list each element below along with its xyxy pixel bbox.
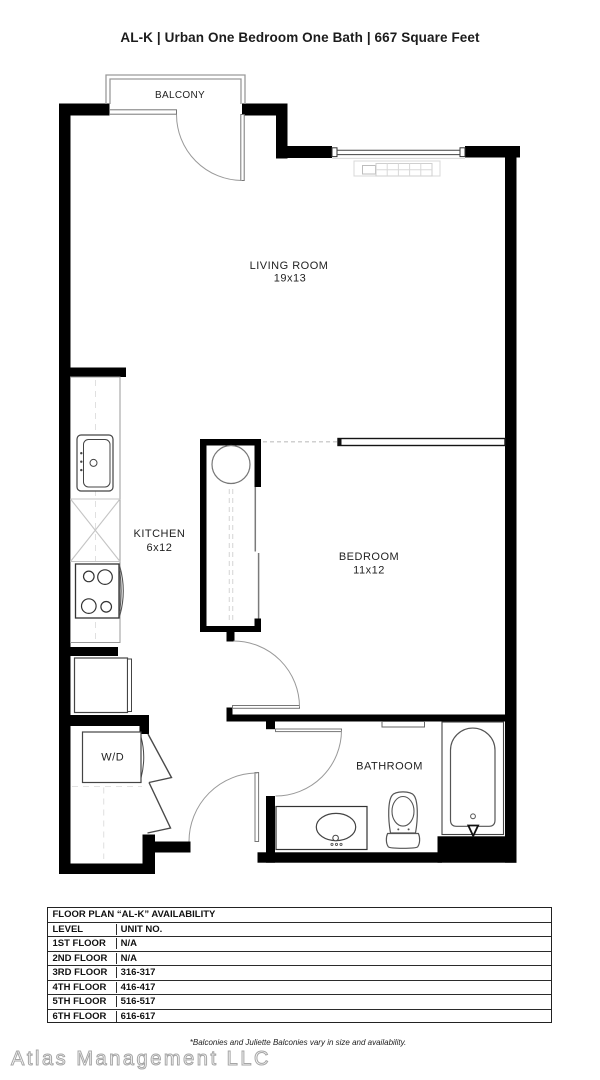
svg-text:LIVING ROOM: LIVING ROOM xyxy=(250,260,329,272)
svg-text:11x12: 11x12 xyxy=(353,565,385,577)
svg-text:6x12: 6x12 xyxy=(146,542,172,554)
svg-text:BALCONY: BALCONY xyxy=(155,90,205,101)
svg-text:W/D: W/D xyxy=(101,751,124,763)
svg-text:KITCHEN: KITCHEN xyxy=(134,528,186,540)
svg-text:BEDROOM: BEDROOM xyxy=(339,551,399,563)
svg-text:19x13: 19x13 xyxy=(274,272,306,284)
svg-text:BATHROOM: BATHROOM xyxy=(356,760,423,772)
